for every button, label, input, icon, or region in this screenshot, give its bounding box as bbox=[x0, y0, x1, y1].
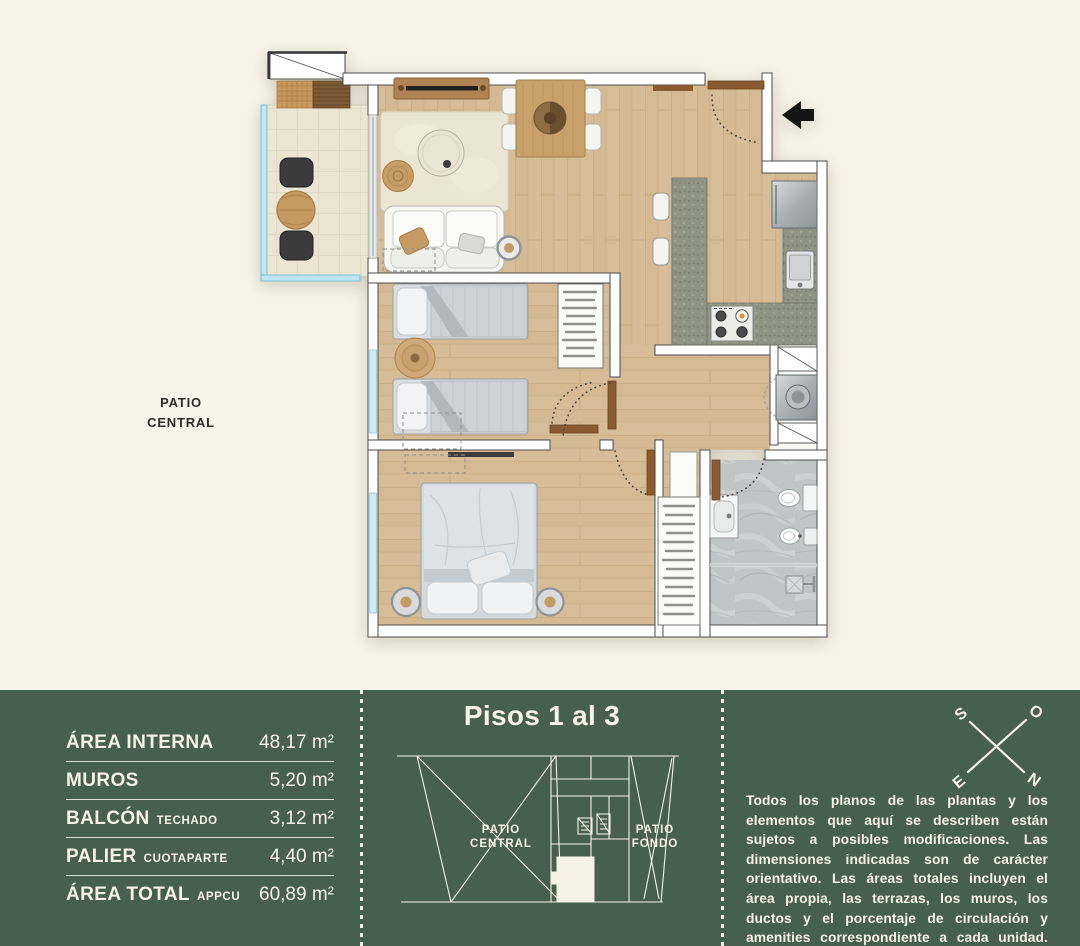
bar-stool bbox=[653, 193, 669, 220]
balcony-chair bbox=[280, 231, 313, 260]
stove bbox=[711, 306, 753, 341]
door-leaf bbox=[647, 450, 655, 495]
area-label: MUROS bbox=[66, 770, 139, 791]
keyplan-patio-central-label: CENTRAL bbox=[470, 838, 532, 850]
patio-central-label: PATIO CENTRAL bbox=[126, 393, 236, 433]
area-label: BALCÓN bbox=[66, 808, 150, 829]
kitchen-sink bbox=[786, 251, 814, 289]
planter bbox=[277, 81, 350, 108]
keyplan-patio-central-label: PATIO bbox=[482, 824, 520, 836]
nightstand bbox=[392, 588, 420, 616]
jute-pouf bbox=[383, 161, 414, 192]
glass-railing bbox=[261, 275, 360, 281]
dining-chair bbox=[584, 88, 601, 114]
door-leaf bbox=[550, 425, 598, 433]
wardrobe bbox=[558, 284, 603, 368]
floorplan-sheet: PATIO CENTRAL bbox=[0, 0, 1080, 946]
area-label: ÁREA TOTAL bbox=[66, 884, 190, 905]
dining-chair bbox=[584, 124, 601, 150]
fridge bbox=[772, 181, 817, 228]
floors-title: Pisos 1 al 3 bbox=[362, 700, 722, 732]
area-sublabel: APPCU bbox=[197, 891, 240, 903]
door-leaf bbox=[712, 460, 720, 500]
compass-e: E bbox=[950, 772, 969, 792]
area-sublabel: TECHADO bbox=[157, 815, 218, 827]
areas-table: ÁREA INTERNA 48,17 m² MUROS 5,20 m² BALC… bbox=[66, 724, 334, 913]
entry-arrow-icon bbox=[782, 101, 814, 129]
table-row: ÁREA TOTALAPPCU 60,89 m² bbox=[66, 876, 334, 913]
area-value: 5,20 m² bbox=[270, 770, 334, 792]
kitchen-counter bbox=[672, 178, 707, 345]
table-row: BALCÓNTECHADO 3,12 m² bbox=[66, 800, 334, 838]
highlighted-unit bbox=[551, 857, 594, 902]
area-sublabel: CUOTAPARTE bbox=[144, 853, 228, 865]
glass-railing bbox=[261, 105, 267, 281]
table-row: ÁREA INTERNA 48,17 m² bbox=[66, 724, 334, 762]
bathroom-floor bbox=[710, 460, 817, 625]
compass-s: S bbox=[952, 704, 971, 724]
compass-n: N bbox=[1024, 770, 1043, 791]
door-leaf bbox=[608, 381, 616, 429]
table-row: PALIERCUOTAPARTE 4,40 m² bbox=[66, 838, 334, 876]
coffee-table bbox=[418, 130, 464, 176]
windows bbox=[369, 115, 377, 613]
vanity-sink bbox=[710, 495, 738, 538]
sofa bbox=[384, 206, 504, 272]
nightstand bbox=[537, 589, 564, 616]
table-row: MUROS 5,20 m² bbox=[66, 762, 334, 800]
double-bed bbox=[421, 483, 537, 619]
wall-shelf bbox=[653, 85, 693, 91]
keyplan-patio-fondo-label: PATIO bbox=[636, 824, 674, 836]
area-label: PALIER bbox=[66, 846, 137, 867]
area-value: 3,12 m² bbox=[270, 808, 334, 830]
bedroom2-window bbox=[370, 493, 377, 613]
single-bed bbox=[393, 284, 528, 339]
site-keyplan: PATIO CENTRAL PATIO FONDO bbox=[391, 744, 691, 912]
area-value: 4,40 m² bbox=[270, 846, 334, 868]
area-label: ÁREA INTERNA bbox=[66, 732, 214, 753]
disclaimer-text: Todos los planos de las plantas y los el… bbox=[746, 791, 1048, 946]
balcony bbox=[261, 52, 368, 281]
entry-door-leaf bbox=[708, 81, 764, 89]
area-value: 60,89 m² bbox=[259, 884, 334, 906]
apartment-floorplan bbox=[255, 45, 830, 640]
bedroom1-window bbox=[370, 350, 377, 433]
compass-o: O bbox=[1026, 702, 1046, 723]
compass-icon: S O E N bbox=[944, 700, 1049, 792]
side-pouf bbox=[498, 237, 521, 260]
tv-console bbox=[394, 78, 489, 99]
area-value: 48,17 m² bbox=[259, 732, 334, 754]
round-rug bbox=[395, 338, 435, 378]
bar-stool bbox=[653, 238, 669, 265]
keyplan-patio-fondo-label: FONDO bbox=[632, 838, 679, 850]
info-panel: ÁREA INTERNA 48,17 m² MUROS 5,20 m² BALC… bbox=[0, 690, 1080, 946]
balcony-chair bbox=[280, 158, 313, 187]
